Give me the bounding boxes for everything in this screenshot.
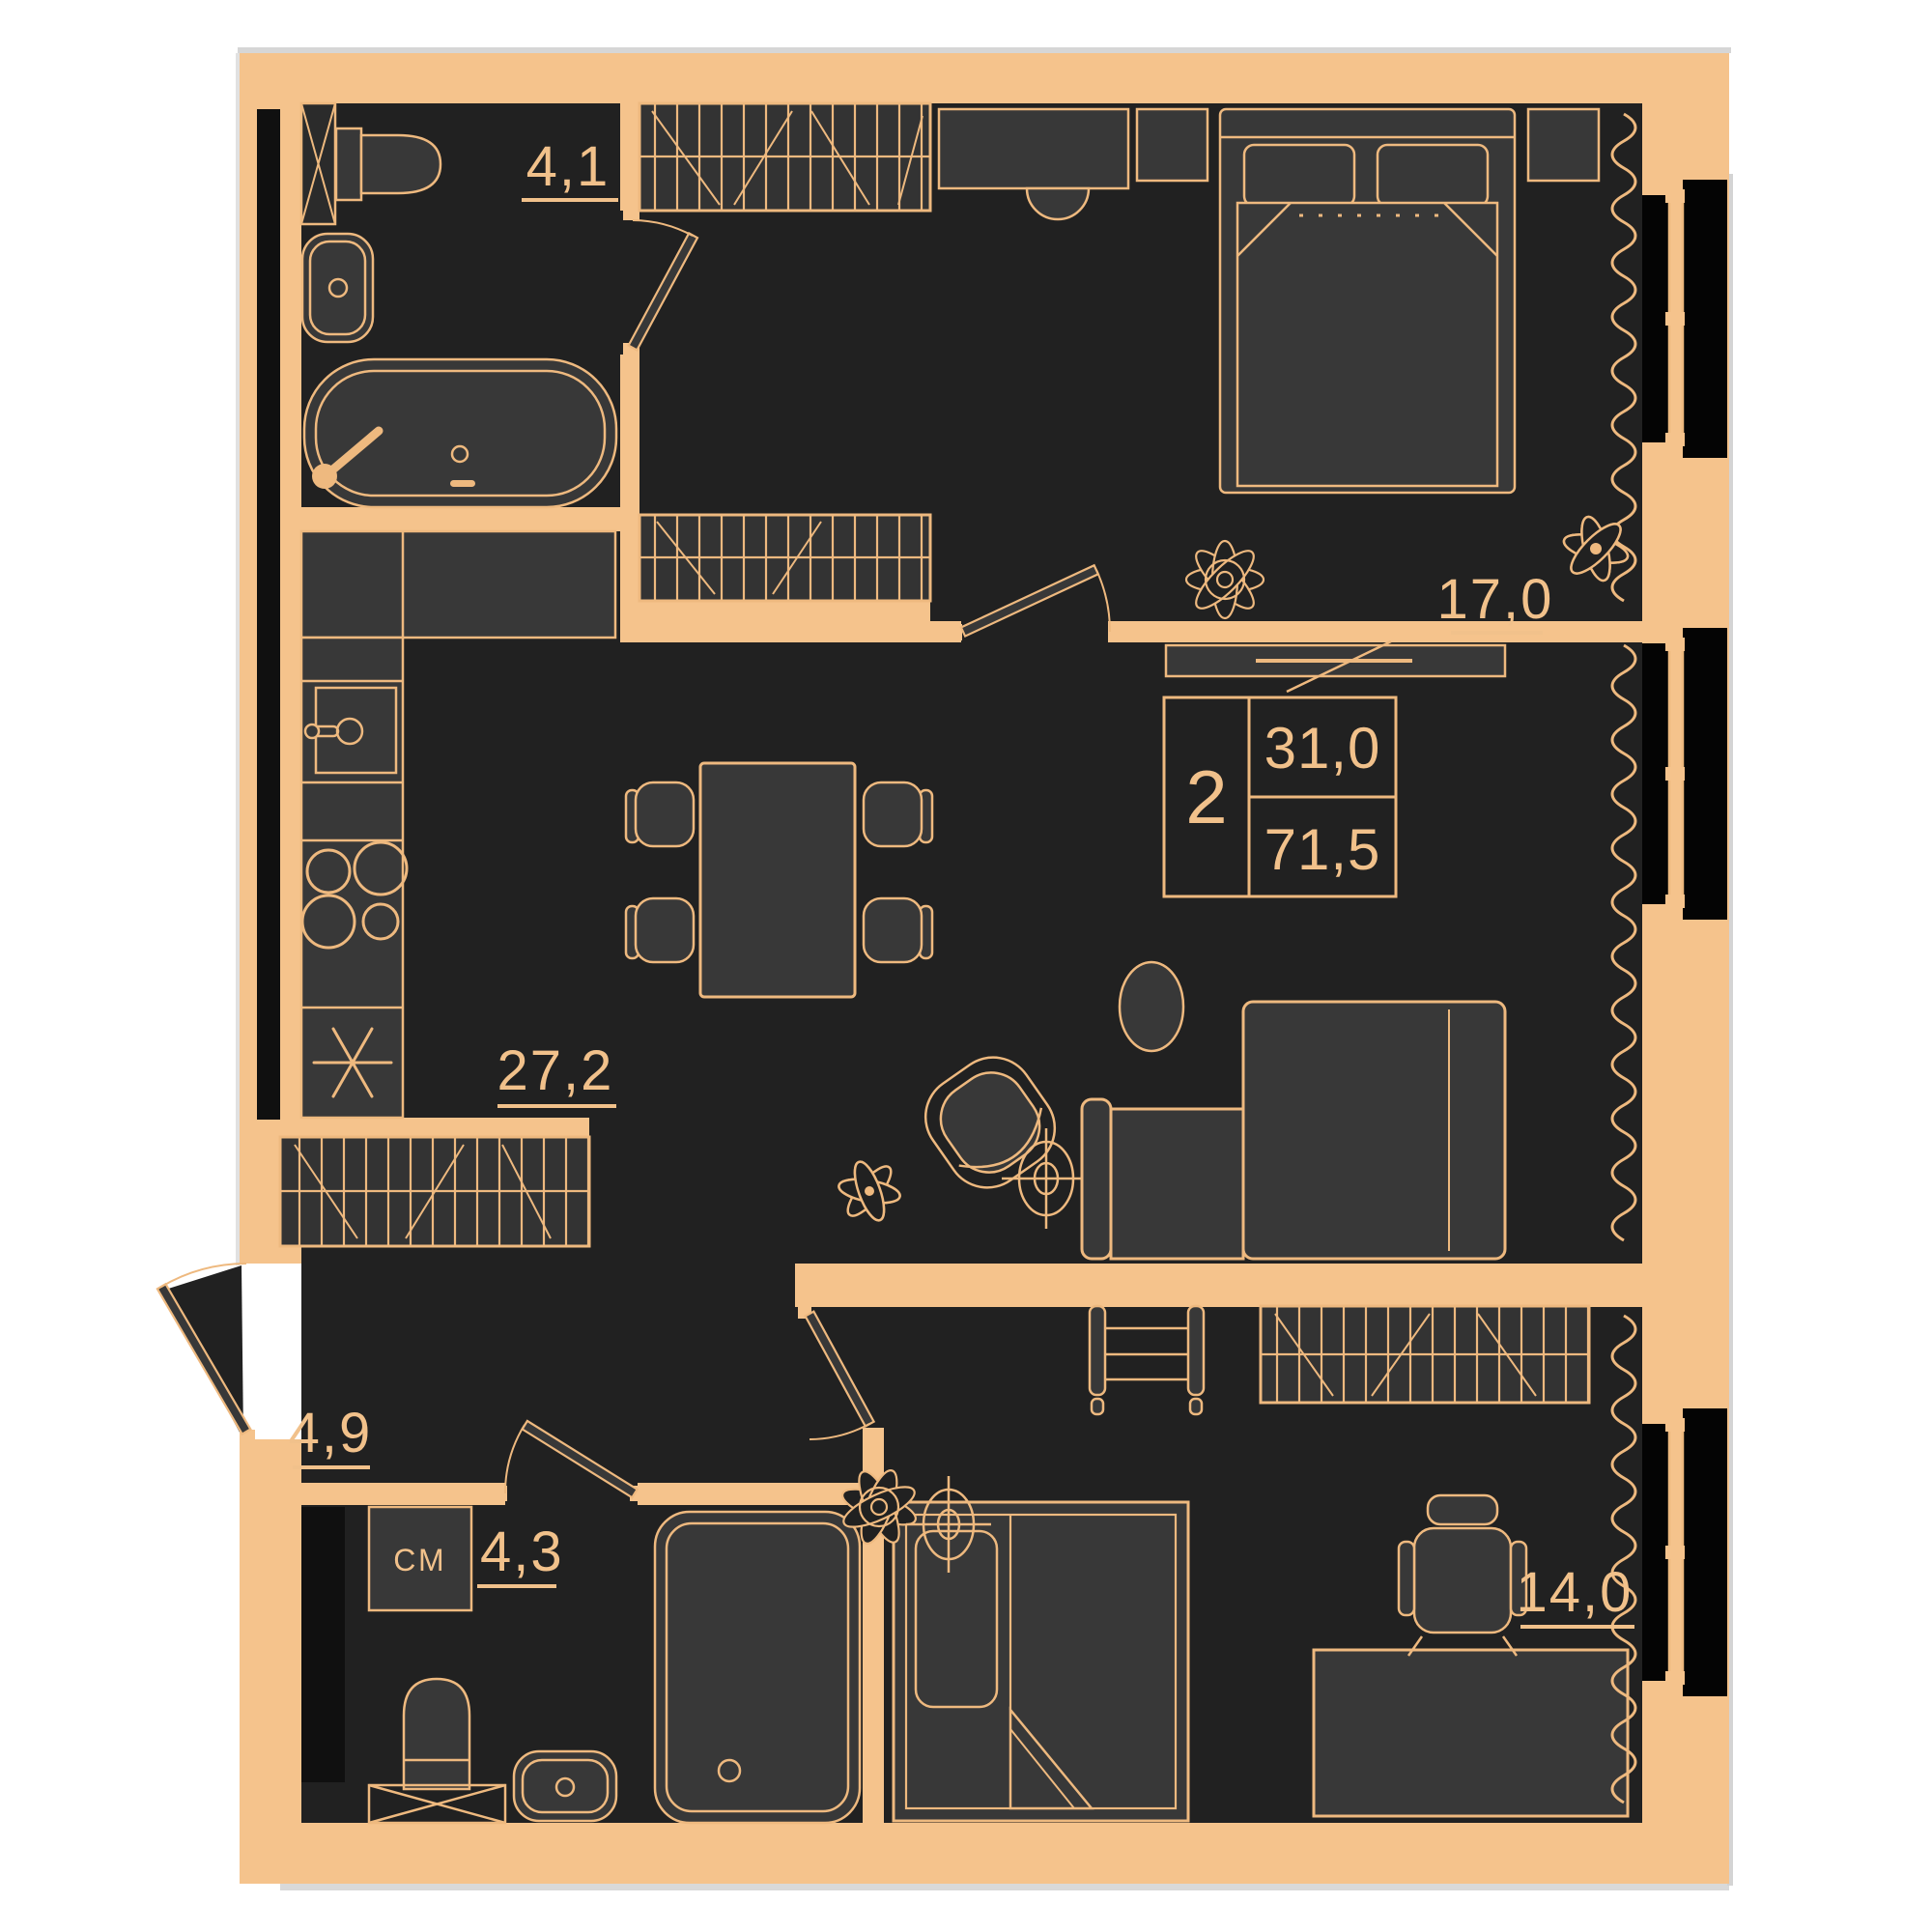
room-label-hallway: 4,9 xyxy=(289,1402,373,1464)
wall-left-lower xyxy=(240,1439,301,1884)
room-label-bathroom1: 4,1 xyxy=(526,135,611,198)
bathtub-icon xyxy=(655,1512,860,1823)
wardrobe-bedroom2 xyxy=(1261,1306,1589,1403)
pillow-icon xyxy=(1244,145,1354,206)
wall-bathroom2-top-right xyxy=(638,1483,863,1505)
info-total-area: 71,5 xyxy=(1264,817,1381,882)
wall-bedroom1-bottom-left xyxy=(620,621,961,642)
info-living-area: 31,0 xyxy=(1264,716,1381,781)
duct-strip-bathroom2 xyxy=(301,1507,345,1782)
duct-strip-left xyxy=(257,109,280,1120)
washing-machine-icon: СМ xyxy=(369,1507,471,1610)
room-label-living: 27,2 xyxy=(497,1039,614,1102)
wall-bathroom1-right-b xyxy=(620,355,639,642)
wall-under-closet xyxy=(639,599,930,623)
bathroom-sink-icon xyxy=(514,1751,616,1821)
toilet-icon xyxy=(336,128,440,200)
round-rug-icon xyxy=(1120,962,1183,1051)
wall-bathroom1-right-a xyxy=(620,103,639,211)
washing-machine-label: СМ xyxy=(393,1543,446,1577)
blanket xyxy=(1237,203,1497,486)
wall-bathroom2-top-left xyxy=(280,1483,505,1505)
info-rooms-count: 2 xyxy=(1185,754,1227,839)
toilet-icon xyxy=(404,1679,469,1789)
floor-plan-page: 4,1 xyxy=(0,0,1932,1932)
nightstand-left-icon xyxy=(1137,109,1207,181)
window-living xyxy=(1642,628,1727,920)
wall-living-bottom xyxy=(795,1264,1642,1307)
kitchen-counter-top-run xyxy=(301,531,615,638)
wall-bedroom1-bottom-right xyxy=(1108,621,1642,642)
floor-plan-drawing: 4,1 xyxy=(0,0,1932,1932)
single-bed-icon xyxy=(894,1502,1188,1821)
vent-shaft-box xyxy=(301,103,335,224)
wall-bathroom1-bottom xyxy=(301,507,620,531)
room-label-bedroom1: 17,0 xyxy=(1437,568,1554,631)
closet-dressing xyxy=(639,515,930,601)
wardrobe-bedroom1 xyxy=(639,103,930,211)
pillow-icon xyxy=(1378,145,1488,206)
dresser-icon xyxy=(939,109,1128,188)
flower-plant-icon xyxy=(1186,541,1264,618)
bathtub-icon xyxy=(304,359,616,507)
wall-bottom xyxy=(240,1823,1729,1884)
double-bed-icon xyxy=(1220,109,1515,493)
window-bedroom1 xyxy=(1642,180,1727,458)
desk-icon xyxy=(1314,1650,1628,1816)
room-label-bedroom2: 14,0 xyxy=(1517,1561,1634,1624)
wall-top xyxy=(240,53,1729,103)
room-label-bathroom2: 4,3 xyxy=(480,1520,564,1583)
wall-kitchen-cap xyxy=(280,1118,589,1137)
window-bedroom2 xyxy=(1642,1408,1727,1696)
closet-hallway xyxy=(280,1137,589,1246)
nightstand-right-icon xyxy=(1528,109,1599,181)
bathroom-sink-icon xyxy=(302,234,373,342)
